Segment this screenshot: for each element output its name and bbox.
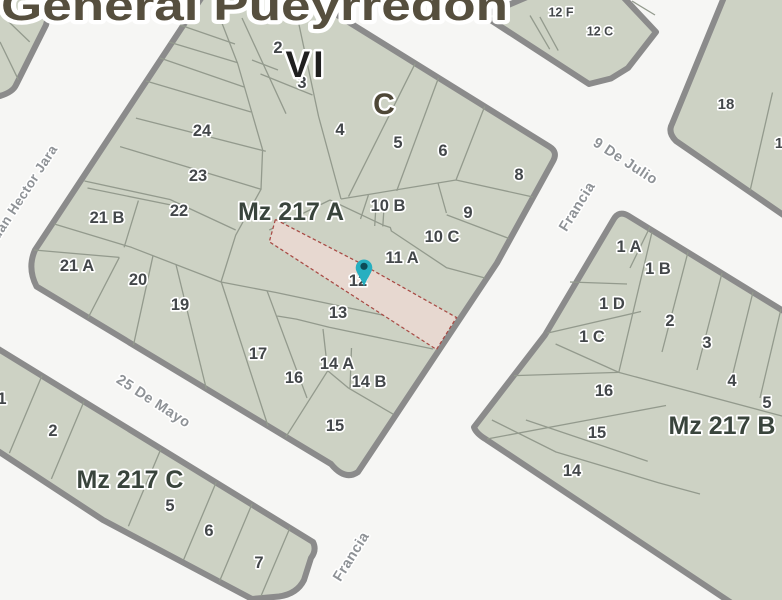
svg-text:2: 2	[665, 312, 674, 330]
svg-text:Mz 217 C: Mz 217 C	[77, 466, 184, 494]
svg-text:6: 6	[204, 522, 213, 540]
svg-text:11 A: 11 A	[385, 249, 418, 267]
svg-text:2: 2	[273, 39, 282, 57]
svg-text:3: 3	[702, 334, 711, 352]
svg-text:8: 8	[514, 166, 523, 184]
svg-text:21 A: 21 A	[60, 257, 94, 275]
svg-text:1 C: 1 C	[579, 328, 605, 346]
svg-text:21 B: 21 B	[90, 209, 125, 227]
svg-text:5: 5	[762, 394, 771, 412]
svg-text:14 A: 14 A	[320, 355, 354, 373]
svg-text:13: 13	[329, 304, 347, 322]
svg-text:20: 20	[129, 271, 147, 289]
svg-text:14: 14	[563, 462, 582, 480]
svg-text:16: 16	[595, 382, 613, 400]
svg-text:1 D: 1 D	[599, 295, 625, 313]
svg-text:15: 15	[588, 424, 606, 442]
svg-text:10 C: 10 C	[425, 228, 460, 246]
svg-text:2: 2	[48, 422, 57, 440]
svg-text:5: 5	[165, 497, 174, 515]
svg-text:19: 19	[171, 296, 189, 314]
svg-text:10 B: 10 B	[371, 197, 406, 215]
svg-text:9: 9	[463, 204, 472, 222]
svg-text:4: 4	[335, 121, 345, 139]
svg-text:1 A: 1 A	[616, 238, 641, 256]
svg-text:15: 15	[326, 417, 344, 435]
svg-text:23: 23	[189, 167, 207, 185]
svg-text:22: 22	[170, 202, 188, 220]
svg-text:C: C	[373, 88, 395, 121]
svg-text:Mz 217 B: Mz 217 B	[669, 412, 776, 440]
svg-text:7: 7	[254, 554, 263, 572]
svg-text:12 F: 12 F	[548, 5, 573, 19]
svg-text:1: 1	[775, 135, 782, 152]
svg-text:24: 24	[193, 122, 212, 140]
svg-text:4: 4	[727, 372, 737, 390]
svg-text:12 C: 12 C	[587, 24, 613, 38]
svg-text:14 B: 14 B	[352, 373, 387, 391]
svg-text:VI: VI	[286, 44, 327, 85]
svg-text:17: 17	[249, 345, 267, 363]
svg-text:General Pueyrredon: General Pueyrredon	[1, 0, 508, 30]
svg-text:5: 5	[393, 134, 402, 152]
svg-text:1 B: 1 B	[645, 260, 671, 278]
svg-text:1: 1	[0, 390, 7, 408]
svg-text:16: 16	[285, 369, 303, 387]
svg-text:Mz 217 A: Mz 217 A	[238, 198, 344, 226]
svg-text:18: 18	[718, 96, 735, 113]
svg-text:6: 6	[438, 142, 447, 160]
